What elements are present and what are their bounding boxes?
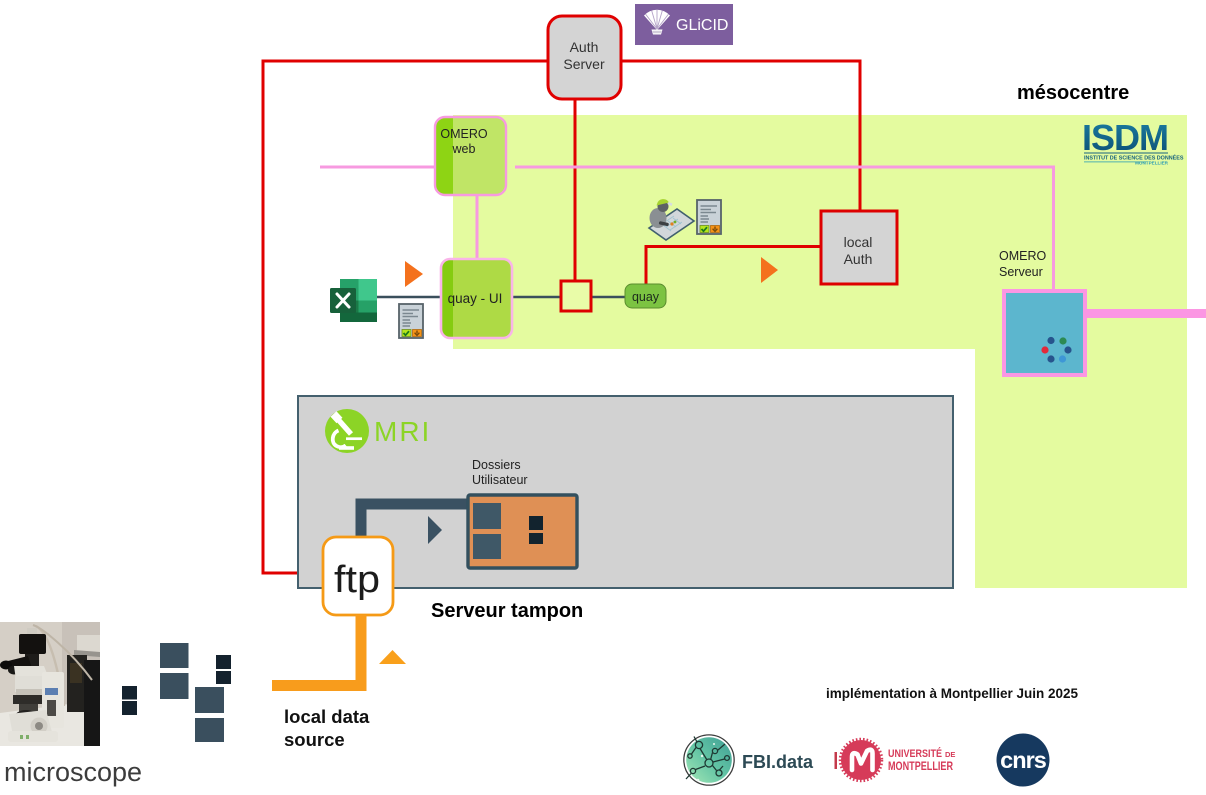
svg-text:ISDM: ISDM [1082,117,1168,158]
svg-text:local data: local data [284,706,370,727]
svg-text:Serveur: Serveur [999,265,1043,279]
svg-text:MRI: MRI [374,416,431,447]
svg-text:MONTPELLIER: MONTPELLIER [888,761,954,773]
svg-text:DE: DE [945,750,955,759]
svg-text:Dossiers: Dossiers [472,458,521,472]
svg-text:local: local [844,234,873,250]
svg-text:cnrs: cnrs [1000,747,1047,773]
svg-text:microscope: microscope [4,757,142,787]
svg-text:OMERO: OMERO [440,127,488,141]
svg-text:GLiCID: GLiCID [676,17,728,34]
svg-text:mésocentre: mésocentre [1017,82,1129,104]
svg-text:MONTPELLIER: MONTPELLIER [1135,161,1169,166]
svg-text:Serveur tampon: Serveur tampon [431,600,583,622]
svg-text:ftp: ftp [334,559,380,601]
svg-text:FBI.data: FBI.data [742,752,814,772]
svg-text:quay: quay [632,290,660,304]
svg-text:INSTITUT DE SCIENCE DES DONNÉE: INSTITUT DE SCIENCE DES DONNÉES [1084,154,1184,162]
svg-text:web: web [452,142,476,156]
svg-text:implémentation à Montpellier J: implémentation à Montpellier Juin 2025 [826,686,1079,701]
svg-text:Auth: Auth [570,39,599,55]
svg-text:Utilisateur: Utilisateur [472,473,528,487]
svg-text:quay - UI: quay - UI [448,291,503,306]
svg-text:Auth: Auth [844,251,873,267]
svg-text:OMERO: OMERO [999,249,1047,263]
svg-text:Server: Server [563,56,605,72]
svg-text:UNIVERSITÉ: UNIVERSITÉ [888,747,942,760]
svg-text:source: source [284,729,345,750]
